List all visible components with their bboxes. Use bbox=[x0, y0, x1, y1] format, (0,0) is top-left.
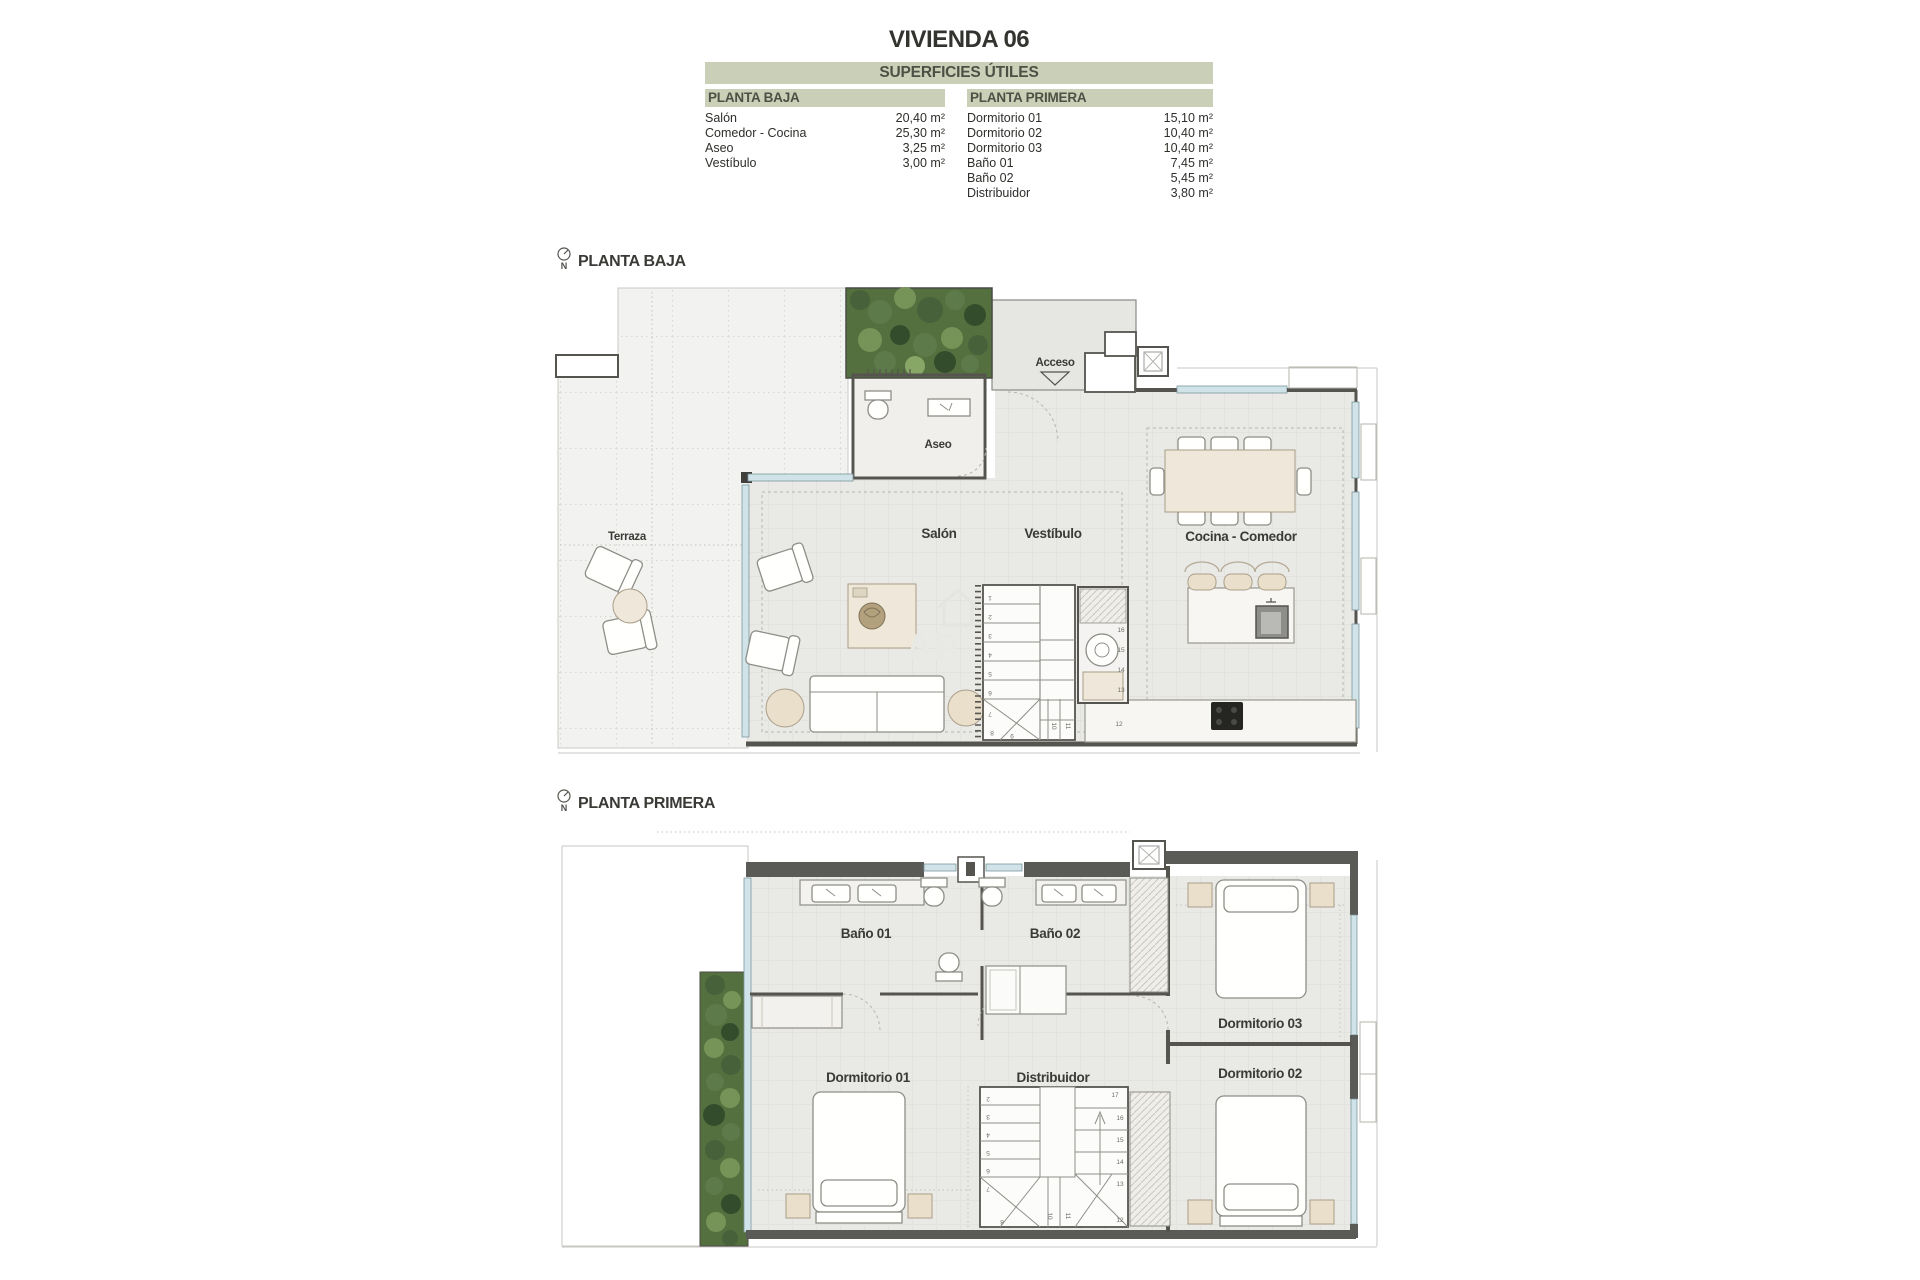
salon-north-window bbox=[748, 474, 853, 481]
north-wall bbox=[746, 862, 924, 877]
bed-dormitorio-01 bbox=[813, 1092, 905, 1223]
room-label-salon: Salón bbox=[921, 526, 956, 541]
step-number: 8 bbox=[1000, 1218, 1004, 1225]
room-area: 3,80 m² bbox=[1171, 186, 1213, 201]
step-number: 12 bbox=[1115, 721, 1123, 728]
step-number: 9 bbox=[1010, 732, 1014, 739]
step-number: 8 bbox=[990, 729, 994, 736]
room-name: Comedor - Cocina bbox=[705, 126, 806, 141]
north-label: N bbox=[561, 804, 568, 812]
kitchen-top-window bbox=[1177, 386, 1287, 393]
room-label-terraza: Terraza bbox=[608, 531, 647, 543]
entry-wall bbox=[1105, 332, 1136, 356]
room-name: Dormitorio 03 bbox=[967, 141, 1042, 156]
planta-baja-column-header: PLANTA BAJA bbox=[705, 89, 945, 107]
plan-title-text: PLANTA PRIMERA bbox=[578, 796, 715, 812]
table-row: Comedor - Cocina25,30 m² bbox=[705, 126, 945, 141]
bathroom2-vanity bbox=[1036, 880, 1126, 905]
toilet bbox=[979, 878, 1005, 906]
bath-window bbox=[986, 864, 1022, 871]
east-window bbox=[1352, 402, 1359, 478]
step-number: 4 bbox=[986, 1131, 990, 1138]
room-area: 20,40 m² bbox=[896, 111, 945, 126]
step-number: 6 bbox=[986, 1167, 990, 1174]
north-wall bbox=[1166, 851, 1358, 864]
table-row: Distribuidor3,80 m² bbox=[967, 186, 1213, 201]
room-name: Aseo bbox=[705, 141, 734, 156]
north-label: N bbox=[561, 262, 568, 270]
table-row: Dormitorio 0115,10 m² bbox=[967, 111, 1213, 126]
bath-window bbox=[924, 864, 956, 871]
wardrobe bbox=[1130, 878, 1168, 992]
room-name: Dormitorio 02 bbox=[967, 126, 1042, 141]
nightstand bbox=[1188, 1200, 1212, 1224]
room-name: Salón bbox=[705, 111, 737, 126]
south-wall bbox=[746, 1230, 1356, 1239]
shutter bbox=[1361, 558, 1376, 614]
step-number: 3 bbox=[988, 632, 992, 639]
table-row: Aseo3,25 m² bbox=[705, 141, 945, 156]
utility-room: 16 15 14 13 bbox=[1078, 587, 1128, 703]
step-number: 13 bbox=[1117, 687, 1125, 694]
step-number: 15 bbox=[1117, 647, 1125, 654]
room-label-dormitorio-03: Dormitorio 03 bbox=[1218, 1016, 1303, 1031]
bed-dormitorio-02 bbox=[1216, 1096, 1306, 1226]
shaft-x-symbol bbox=[1133, 841, 1165, 869]
step-number: 10 bbox=[1050, 722, 1057, 730]
vestibulo-floor bbox=[995, 390, 1136, 480]
nightstand bbox=[1188, 883, 1212, 907]
room-label-dormitorio-01: Dormitorio 01 bbox=[826, 1070, 911, 1085]
step-number: 2 bbox=[986, 1095, 990, 1102]
step-number: 7 bbox=[988, 710, 992, 717]
floor-plan-sheet: VIVIENDA 06 SUPERFICIES ÚTILES PLANTA BA… bbox=[0, 0, 1920, 1280]
table-row: Salón20,40 m² bbox=[705, 111, 945, 126]
step-number: 10 bbox=[1046, 1212, 1053, 1220]
kitchen-island bbox=[1188, 588, 1294, 643]
room-label-vestibulo: Vestíbulo bbox=[1024, 526, 1081, 541]
room-area: 7,45 m² bbox=[1171, 156, 1213, 171]
room-name: Baño 02 bbox=[967, 171, 1014, 186]
step-number: 2 bbox=[988, 613, 992, 620]
east-window bbox=[1351, 915, 1357, 1035]
room-area: 5,45 m² bbox=[1171, 171, 1213, 186]
table-row: Dormitorio 0210,40 m² bbox=[967, 126, 1213, 141]
room-label-distribuidor: Distribuidor bbox=[1017, 1070, 1091, 1085]
nightstand bbox=[1310, 883, 1334, 907]
toilet bbox=[936, 953, 962, 981]
toilet bbox=[921, 878, 947, 906]
east-window bbox=[1352, 492, 1359, 610]
room-label-bano-01: Baño 01 bbox=[841, 926, 892, 941]
room-name: Dormitorio 01 bbox=[967, 111, 1042, 126]
bathroom1-vanity bbox=[800, 880, 924, 905]
shutter bbox=[1361, 424, 1376, 480]
step-number: 11 bbox=[1064, 723, 1071, 730]
vertical-garden bbox=[700, 972, 748, 1246]
north-wall bbox=[1024, 862, 1130, 877]
table-row: Vestíbulo3,00 m² bbox=[705, 156, 945, 171]
shutter bbox=[1360, 1022, 1376, 1074]
step-number: 4 bbox=[988, 651, 992, 658]
step-number: 5 bbox=[988, 670, 992, 677]
plan-title-text: PLANTA BAJA bbox=[578, 254, 686, 270]
shaft-x-symbol bbox=[1138, 347, 1168, 376]
hall-cabinet bbox=[986, 966, 1066, 1014]
room-label-cocina-comedor: Cocina - Comedor bbox=[1185, 529, 1298, 544]
nightstand bbox=[786, 1194, 810, 1218]
step-number: 14 bbox=[1116, 1159, 1124, 1166]
side-table bbox=[766, 689, 804, 727]
room-area: 15,10 m² bbox=[1164, 111, 1213, 126]
room-label-aseo: Aseo bbox=[925, 439, 952, 451]
room-area: 3,25 m² bbox=[903, 141, 945, 156]
terrace-side-table bbox=[613, 589, 647, 623]
exterior-ledge bbox=[1289, 367, 1357, 388]
step-number: 6 bbox=[988, 689, 992, 696]
room-name: Vestíbulo bbox=[705, 156, 756, 171]
sofa bbox=[810, 676, 944, 732]
step-number: 13 bbox=[1116, 1181, 1124, 1188]
step-number: 3 bbox=[986, 1113, 990, 1120]
salon-west-window bbox=[742, 485, 749, 737]
room-name: Distribuidor bbox=[967, 186, 1030, 201]
north-icon: N bbox=[556, 788, 572, 812]
access-label: Acceso bbox=[1035, 357, 1074, 369]
step-number: 16 bbox=[1116, 1115, 1124, 1122]
north-icon: N bbox=[556, 246, 572, 270]
dining-table-set bbox=[1150, 437, 1311, 525]
planter-box bbox=[556, 355, 618, 377]
room-label-bano-02: Baño 02 bbox=[1030, 926, 1080, 941]
east-wall bbox=[1350, 851, 1358, 915]
vertical-garden bbox=[846, 287, 992, 378]
ground-floor-plan: 1 2 3 4 5 6 7 8 9 10 11 12 16 15 14 13 bbox=[555, 285, 1425, 775]
step-number: 7 bbox=[986, 1185, 990, 1192]
room-name: Baño 01 bbox=[967, 156, 1014, 171]
room-area: 25,30 m² bbox=[896, 126, 945, 141]
planta-primera-surfaces-table: Dormitorio 0115,10 m² Dormitorio 0210,40… bbox=[967, 111, 1213, 201]
room-area: 10,40 m² bbox=[1164, 126, 1213, 141]
step-number: 1 bbox=[988, 594, 992, 601]
table-row: Dormitorio 0310,40 m² bbox=[967, 141, 1213, 156]
step-number: 15 bbox=[1116, 1137, 1124, 1144]
desk-bench bbox=[752, 996, 842, 1028]
planta-primera-column-header: PLANTA PRIMERA bbox=[967, 89, 1213, 107]
surfaces-table-header: SUPERFICIES ÚTILES bbox=[705, 62, 1213, 84]
shutter bbox=[1360, 1074, 1376, 1122]
nightstand bbox=[1310, 1200, 1334, 1224]
room-area: 3,00 m² bbox=[903, 156, 945, 171]
wardrobe bbox=[1130, 1092, 1170, 1226]
first-floor-plan: 2 3 4 5 6 7 8 10 11 12 13 14 15 16 17 Ba… bbox=[555, 828, 1435, 1262]
step-number: 5 bbox=[986, 1149, 990, 1156]
planta-baja-surfaces-table: Salón20,40 m² Comedor - Cocina25,30 m² A… bbox=[705, 111, 945, 171]
table-row: Baño 017,45 m² bbox=[967, 156, 1213, 171]
ground-plan-title: N PLANTA BAJA bbox=[556, 246, 686, 270]
toilet bbox=[865, 391, 891, 419]
step-number: 17 bbox=[1111, 1092, 1119, 1099]
aseo-vanity bbox=[928, 399, 970, 416]
washer bbox=[1086, 634, 1118, 666]
step-number: 14 bbox=[1117, 667, 1125, 674]
table-row: Baño 025,45 m² bbox=[967, 171, 1213, 186]
west-window bbox=[744, 878, 751, 1232]
nightstand bbox=[908, 1194, 932, 1218]
page-title: VIVIENDA 06 bbox=[705, 26, 1213, 54]
step-number: 11 bbox=[1064, 1213, 1071, 1220]
cooktop bbox=[1211, 702, 1243, 730]
room-area: 10,40 m² bbox=[1164, 141, 1213, 156]
watermark-text: AP bbox=[906, 627, 959, 669]
first-plan-title: N PLANTA PRIMERA bbox=[556, 788, 715, 812]
bed-dormitorio-03 bbox=[1216, 880, 1306, 998]
entry-wall bbox=[1085, 353, 1135, 392]
room-label-dormitorio-02: Dormitorio 02 bbox=[1218, 1066, 1302, 1081]
step-number: 12 bbox=[1116, 1217, 1124, 1224]
step-number: 16 bbox=[1117, 627, 1125, 634]
staircase: 2 3 4 5 6 7 8 10 11 12 13 14 15 16 17 bbox=[980, 1087, 1128, 1227]
east-window bbox=[1351, 1099, 1357, 1224]
